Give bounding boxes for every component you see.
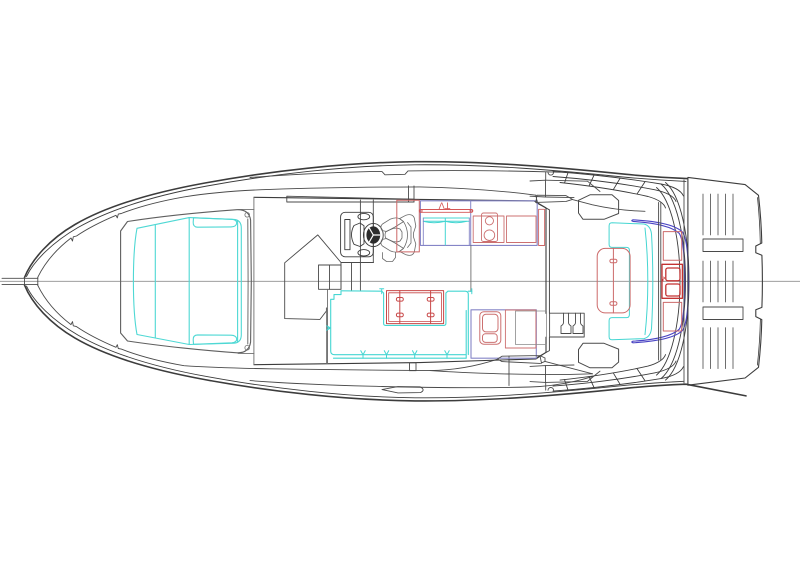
svg-text:TV: TV	[438, 200, 451, 210]
